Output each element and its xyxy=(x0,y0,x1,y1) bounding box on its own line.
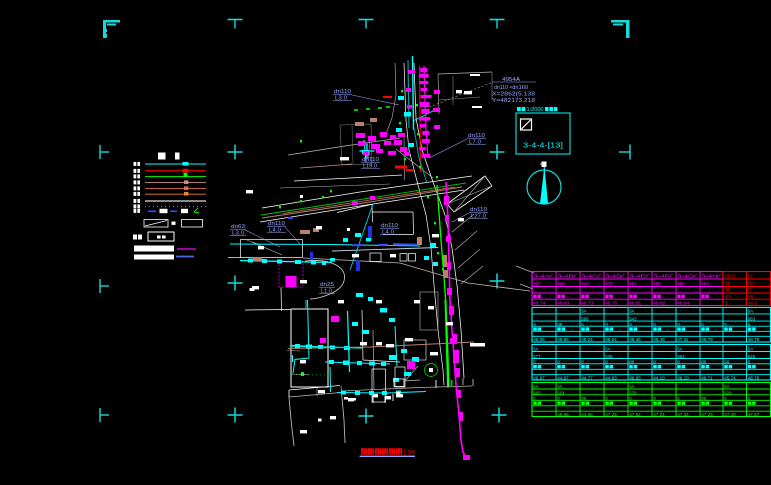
svg-text:47.62: 47.62 xyxy=(629,412,641,417)
svg-text:48.46: 48.46 xyxy=(629,337,641,342)
svg-text:48.76: 48.76 xyxy=(748,337,760,342)
svg-text:564: 564 xyxy=(557,390,565,395)
svg-text:48.65: 48.65 xyxy=(557,412,569,417)
svg-text:44.77: 44.77 xyxy=(581,375,593,380)
svg-text:5A: 5A xyxy=(605,346,610,351)
svg-text:984: 984 xyxy=(701,281,709,286)
svg-text:578: 578 xyxy=(629,390,637,395)
svg-text:577: 577 xyxy=(533,354,541,359)
svg-text:543: 543 xyxy=(629,317,637,322)
svg-text:525: 525 xyxy=(748,354,756,359)
svg-text:48.82: 48.82 xyxy=(653,300,665,306)
svg-text:3-4B⁄⁄: 3-4B⁄⁄ xyxy=(557,273,578,278)
svg-text:48.73: 48.73 xyxy=(581,300,593,306)
svg-text:48.64: 48.64 xyxy=(605,337,617,342)
svg-text:61: 61 xyxy=(725,280,731,285)
svg-text:560: 560 xyxy=(533,390,541,395)
svg-text:48.45: 48.45 xyxy=(653,337,665,342)
svg-text:47.24: 47.24 xyxy=(653,412,665,417)
svg-text:5A: 5A xyxy=(557,384,562,389)
svg-text:48.84: 48.84 xyxy=(677,300,689,306)
svg-text:3-4F⁄⁄: 3-4F⁄⁄ xyxy=(653,273,674,278)
svg-text:982: 982 xyxy=(677,281,685,286)
svg-text:5A: 5A xyxy=(629,384,634,389)
svg-text:981: 981 xyxy=(629,281,637,286)
svg-text:88: 88 xyxy=(724,360,729,365)
svg-text:Y=482173.218: Y=482173.218 xyxy=(492,98,535,104)
svg-text:47.67: 47.67 xyxy=(748,412,760,417)
svg-text:5A: 5A xyxy=(533,346,538,351)
svg-text:535: 535 xyxy=(605,354,613,359)
svg-text:1:2000: 1:2000 xyxy=(527,107,544,113)
svg-text:48.24: 48.24 xyxy=(581,337,593,342)
svg-text:48.10: 48.10 xyxy=(677,375,689,380)
svg-text:979: 979 xyxy=(605,281,613,286)
svg-text:88: 88 xyxy=(581,396,586,401)
svg-text:dn110: dn110 xyxy=(494,85,508,91)
svg-text:5A: 5A xyxy=(748,309,753,314)
svg-text:47.11: 47.11 xyxy=(677,337,689,342)
svg-text:88: 88 xyxy=(701,360,706,365)
svg-text:44.83: 44.83 xyxy=(605,375,617,380)
svg-text:XX: XX xyxy=(725,294,731,299)
svg-text:F902: F902 xyxy=(725,274,736,279)
svg-text:44.87: 44.87 xyxy=(557,375,569,380)
svg-text:48.78: 48.78 xyxy=(748,375,760,380)
svg-text:3-4H⁄⁄: 3-4H⁄⁄ xyxy=(701,273,722,278)
svg-text:3-4E⁄⁄: 3-4E⁄⁄ xyxy=(629,273,650,278)
svg-text:88: 88 xyxy=(701,396,706,401)
svg-text:1:500: 1:500 xyxy=(404,450,416,457)
svg-text:88: 88 xyxy=(557,322,562,327)
svg-text:47.28: 47.28 xyxy=(605,412,617,417)
svg-text:5A: 5A xyxy=(677,346,682,351)
svg-text:583: 583 xyxy=(748,317,756,322)
svg-text:48.05: 48.05 xyxy=(533,337,545,342)
svg-text:563: 563 xyxy=(677,354,685,359)
svg-text:44.10: 44.10 xyxy=(653,375,665,380)
svg-text:5A: 5A xyxy=(581,309,586,314)
svg-text:0: 0 xyxy=(748,287,751,292)
svg-text:X=2862(5.138: X=2862(5.138 xyxy=(492,92,535,98)
svg-text:48.83: 48.83 xyxy=(629,375,641,380)
svg-text:992: 992 xyxy=(653,281,661,286)
svg-text:5A: 5A xyxy=(629,309,634,314)
svg-text:48.76: 48.76 xyxy=(605,300,617,306)
svg-text:45.74: 45.74 xyxy=(724,375,736,380)
svg-text:528: 528 xyxy=(724,390,732,395)
svg-text:566: 566 xyxy=(581,317,589,322)
svg-text:48.87: 48.87 xyxy=(533,375,545,380)
svg-text:47.49: 47.49 xyxy=(724,412,736,417)
svg-text:88: 88 xyxy=(629,360,634,365)
svg-text:927: 927 xyxy=(533,281,541,286)
svg-text:5A: 5A xyxy=(724,384,729,389)
svg-text:DU: DU xyxy=(748,280,755,285)
svg-text:48.81: 48.81 xyxy=(629,300,641,306)
svg-text:48.74: 48.74 xyxy=(533,300,545,306)
svg-text:×dn160: ×dn160 xyxy=(509,85,528,91)
svg-text:3-4D⁄⁄: 3-4D⁄⁄ xyxy=(605,273,626,278)
svg-text:48.95: 48.95 xyxy=(557,337,569,342)
svg-text:942: 942 xyxy=(581,281,589,286)
svg-text:36: 36 xyxy=(725,287,731,292)
svg-text:5A: 5A xyxy=(533,384,538,389)
svg-text:3-4A⁄⁄: 3-4A⁄⁄ xyxy=(533,273,554,278)
svg-text:98: 98 xyxy=(748,294,754,299)
svg-text:01: 01 xyxy=(748,274,754,279)
svg-text:926: 926 xyxy=(557,281,565,286)
svg-text:3-4C⁄⁄: 3-4C⁄⁄ xyxy=(581,273,602,278)
svg-text:3-4-4-[13]: 3-4-4-[13] xyxy=(523,143,563,150)
svg-text:9: 9 xyxy=(725,301,728,306)
svg-text:48.6: 48.6 xyxy=(748,301,757,306)
svg-text:48.71: 48.71 xyxy=(701,375,713,380)
svg-text:48.79: 48.79 xyxy=(701,337,713,342)
svg-text:47.34: 47.34 xyxy=(677,412,689,417)
svg-text:44.58: 44.58 xyxy=(581,412,593,417)
svg-text:3-4G⁄⁄: 3-4G⁄⁄ xyxy=(677,273,698,278)
svg-text:48.93: 48.93 xyxy=(557,300,569,306)
svg-text:47.29: 47.29 xyxy=(701,412,713,417)
svg-text:5A: 5A xyxy=(748,346,753,351)
